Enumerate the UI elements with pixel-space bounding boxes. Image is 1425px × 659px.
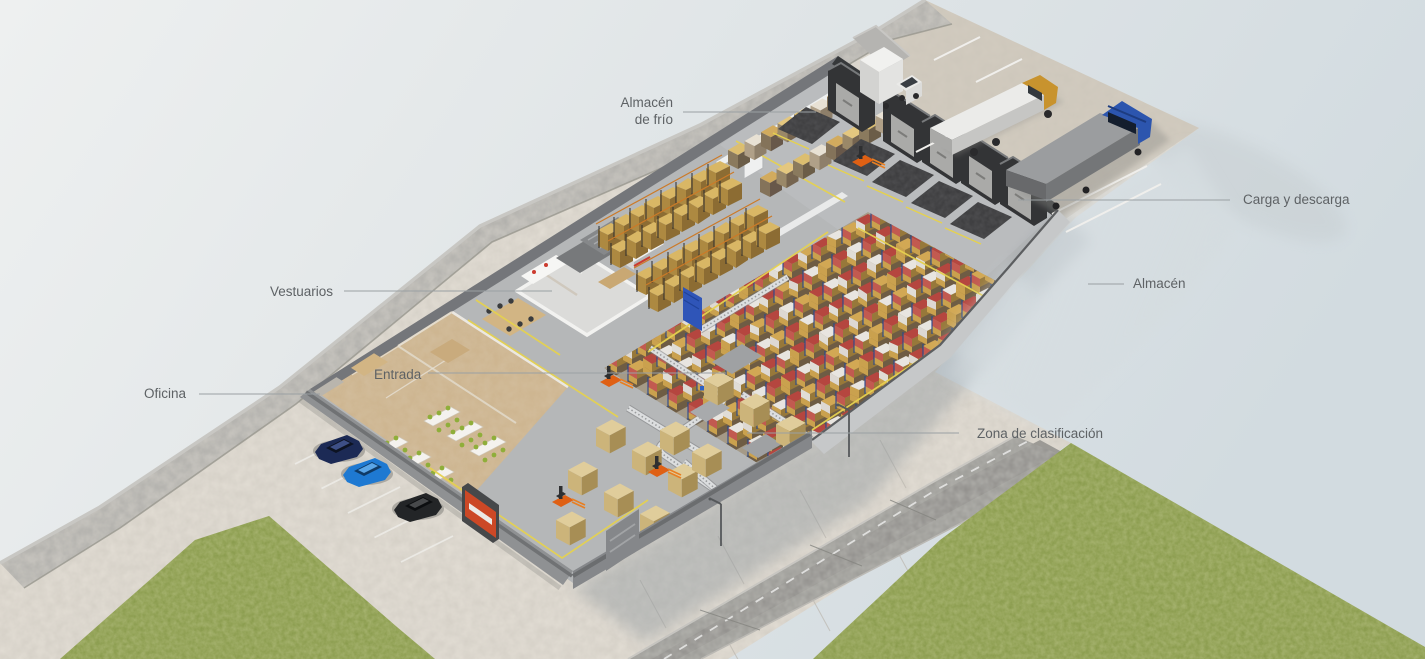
svg-text:Oficina: Oficina [144, 386, 187, 401]
svg-text:Almacén: Almacén [1133, 276, 1186, 291]
svg-text:Vestuarios: Vestuarios [270, 284, 333, 299]
svg-text:Almacén: Almacén [620, 95, 673, 110]
svg-text:de frío: de frío [635, 112, 673, 127]
svg-text:Carga y descarga: Carga y descarga [1243, 192, 1350, 207]
svg-text:Entrada: Entrada [374, 367, 422, 382]
svg-text:Zona de clasificación: Zona de clasificación [977, 426, 1103, 441]
